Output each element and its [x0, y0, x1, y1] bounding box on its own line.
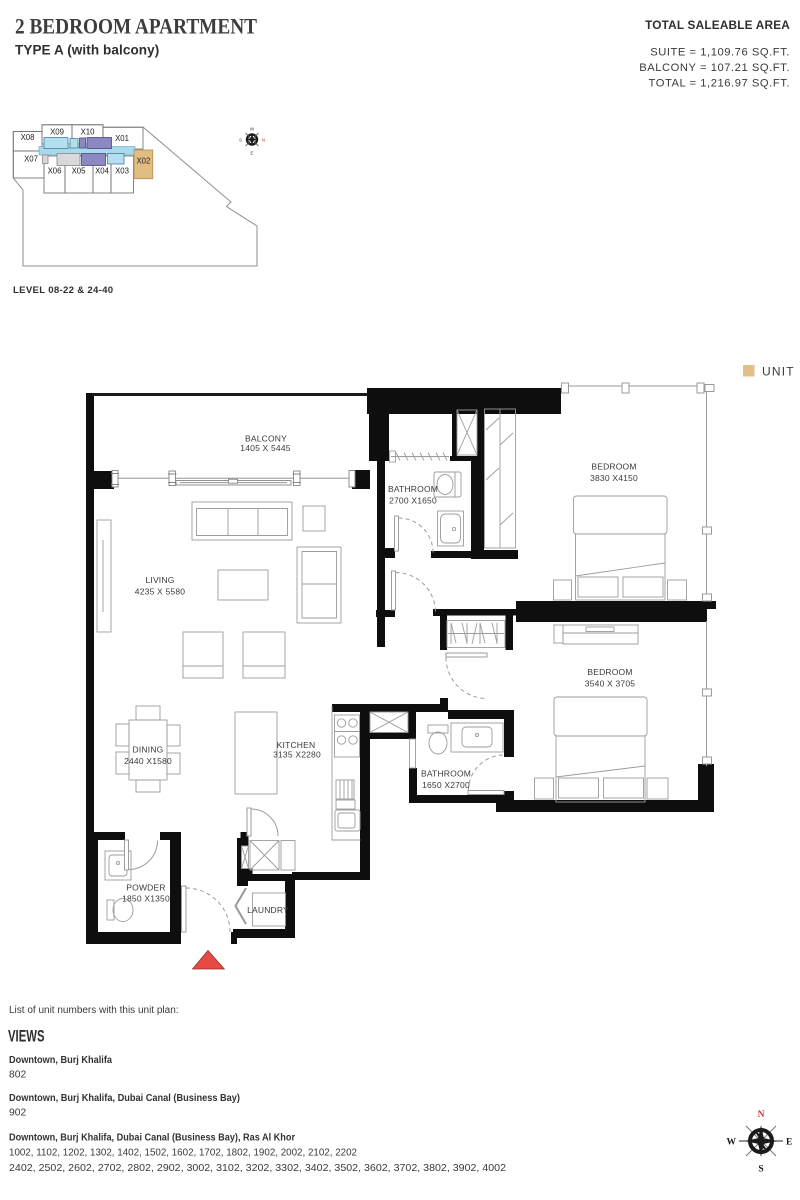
svg-text:E: E: [786, 1138, 792, 1148]
svg-text:2 BEDROOM APARTMENT: 2 BEDROOM APARTMENT: [15, 14, 257, 39]
svg-text:Downtown, Burj Khalifa: Downtown, Burj Khalifa: [9, 1054, 112, 1066]
svg-text:KITCHEN: KITCHEN: [277, 740, 316, 750]
svg-text:Downtown, Burj Khalifa, Dubai: Downtown, Burj Khalifa, Dubai Canal (Bus…: [9, 1092, 240, 1104]
svg-text:BATHROOM: BATHROOM: [421, 769, 471, 779]
svg-text:Downtown, Burj Khalifa, Dubai: Downtown, Burj Khalifa, Dubai Canal (Bus…: [9, 1132, 295, 1144]
svg-text:TYPE A (with balcony): TYPE A (with balcony): [15, 43, 159, 58]
svg-text:1405 X 5445: 1405 X 5445: [240, 443, 290, 453]
svg-text:DINING: DINING: [133, 745, 164, 755]
svg-text:802: 802: [9, 1070, 26, 1081]
svg-text:BEDROOM: BEDROOM: [587, 667, 632, 677]
svg-text:W: W: [250, 127, 255, 132]
svg-text:TOTAL = 1,216.97 SQ.FT.: TOTAL = 1,216.97 SQ.FT.: [649, 77, 790, 89]
svg-text:BEDROOM: BEDROOM: [591, 462, 636, 472]
svg-text:X06: X06: [48, 167, 62, 176]
svg-text:BALCONY = 107.21 SQ.FT.: BALCONY = 107.21 SQ.FT.: [639, 62, 790, 74]
svg-text:BALCONY: BALCONY: [245, 433, 287, 443]
svg-text:S: S: [239, 138, 242, 143]
svg-text:BATHROOM: BATHROOM: [388, 484, 438, 494]
svg-text:SUITE = 1,109.76 SQ.FT.: SUITE = 1,109.76 SQ.FT.: [650, 46, 790, 58]
svg-text:1650 X2700: 1650 X2700: [422, 780, 470, 790]
svg-text:3540 X 3705: 3540 X 3705: [585, 679, 635, 689]
svg-text:3830 X4150: 3830 X4150: [590, 473, 638, 483]
svg-text:X03: X03: [115, 167, 129, 176]
svg-text:LEVEL 08-22 & 24-40: LEVEL 08-22 & 24-40: [13, 285, 113, 296]
svg-text:N: N: [262, 138, 265, 143]
svg-text:E: E: [250, 151, 253, 156]
svg-text:W: W: [727, 1138, 737, 1148]
svg-text:X08: X08: [21, 133, 35, 142]
svg-text:X07: X07: [24, 155, 38, 164]
svg-text:UNIT: UNIT: [762, 365, 795, 379]
svg-text:3135 X2280: 3135 X2280: [273, 750, 321, 760]
svg-text:2402, 2502, 2602, 2702, 2802,: 2402, 2502, 2602, 2702, 2802, 2902, 3002…: [9, 1163, 506, 1174]
svg-text:LIVING: LIVING: [145, 575, 174, 585]
svg-text:X04: X04: [95, 167, 110, 176]
svg-text:X10: X10: [81, 128, 96, 137]
svg-text:2700 X1650: 2700 X1650: [389, 496, 437, 506]
svg-text:902: 902: [9, 1108, 26, 1119]
svg-text:4235 X 5580: 4235 X 5580: [135, 587, 185, 597]
svg-text:X01: X01: [115, 134, 129, 143]
svg-text:POWDER: POWDER: [126, 883, 165, 893]
svg-text:1850 X1350: 1850 X1350: [122, 894, 170, 904]
svg-text:X02: X02: [136, 157, 150, 166]
svg-text:List of unit numbers with this: List of unit numbers with this unit plan…: [9, 1005, 179, 1016]
svg-text:2440 X1580: 2440 X1580: [124, 756, 172, 766]
svg-text:LAUNDRY: LAUNDRY: [247, 905, 289, 915]
svg-text:1002, 1102, 1202, 1302, 1402,: 1002, 1102, 1202, 1302, 1402, 1502, 1602…: [9, 1147, 357, 1158]
svg-text:N: N: [758, 1110, 765, 1120]
svg-text:VIEWS: VIEWS: [8, 1028, 45, 1046]
svg-text:X05: X05: [72, 167, 87, 176]
svg-text:S: S: [758, 1165, 763, 1175]
svg-text:X09: X09: [50, 128, 64, 137]
svg-text:TOTAL SALEABLE AREA: TOTAL SALEABLE AREA: [645, 18, 790, 32]
